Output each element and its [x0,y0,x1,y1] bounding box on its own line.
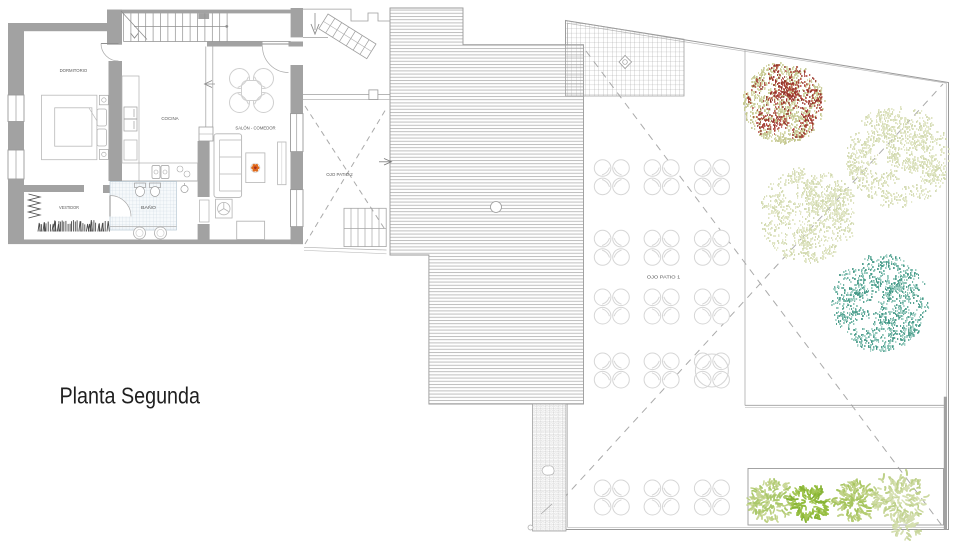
svg-text:VESTIDOR: VESTIDOR [59,205,79,211]
svg-text:OJO PATIO 2: OJO PATIO 2 [326,172,353,178]
svg-text:DORMITORIO: DORMITORIO [60,68,88,74]
svg-text:COCINA: COCINA [161,116,179,122]
svg-text:BAÑO: BAÑO [141,204,156,211]
svg-text:Planta Segunda: Planta Segunda [60,383,201,409]
svg-text:OJO PATIO 1: OJO PATIO 1 [647,274,681,280]
svg-text:SALÓN - COMEDOR: SALÓN - COMEDOR [235,125,276,132]
